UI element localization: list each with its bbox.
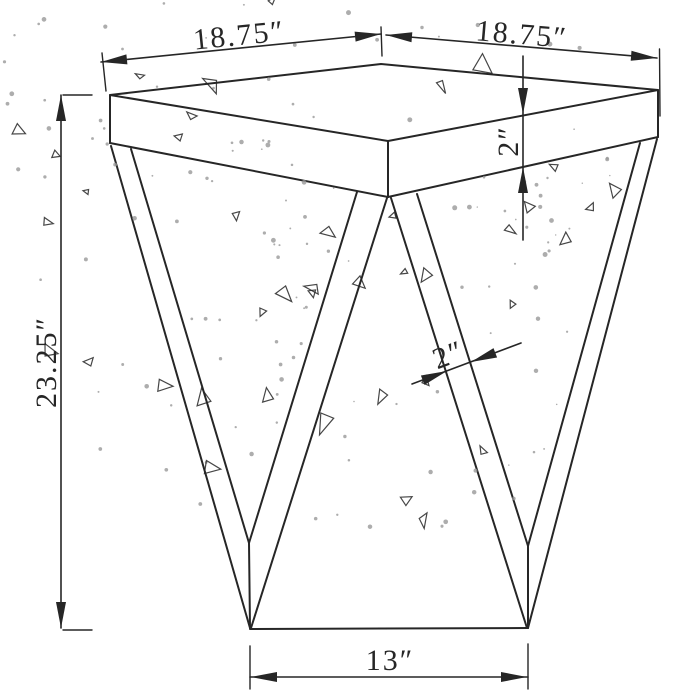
speckle-dot bbox=[533, 451, 536, 454]
speckle-dot bbox=[543, 448, 545, 450]
dim-arrowhead-down bbox=[56, 602, 66, 628]
dim-arrowhead-right bbox=[631, 51, 657, 61]
speckle-dot bbox=[198, 502, 202, 506]
speckle-dot bbox=[314, 517, 318, 521]
speckle-dot bbox=[538, 205, 542, 209]
dim-top-right-width-label: 18.75″ bbox=[475, 14, 569, 55]
right-leg-panel bbox=[163, 0, 657, 628]
speckle-dot bbox=[273, 243, 275, 245]
speckle-dot bbox=[343, 435, 346, 438]
speckle-dot bbox=[84, 257, 88, 261]
speckle-dot bbox=[103, 127, 106, 130]
speckle-dot bbox=[99, 119, 103, 123]
speckle-dot bbox=[477, 206, 478, 207]
speckle-dot bbox=[515, 219, 517, 221]
speckle-dot bbox=[474, 469, 478, 473]
base-stretcher-line bbox=[250, 628, 528, 629]
right-leg-outer-left bbox=[391, 198, 527, 628]
speckle-dot bbox=[460, 285, 463, 288]
speckle-dot bbox=[276, 393, 279, 396]
speckle-dot bbox=[39, 278, 42, 281]
left-leg-inner-right bbox=[249, 192, 357, 543]
dim-arrowhead-left bbox=[386, 32, 412, 42]
speckle-dot bbox=[9, 91, 14, 96]
dim-top-left-width-label: 18.75″ bbox=[192, 15, 287, 57]
speckle-dot bbox=[303, 307, 305, 309]
speckle-dot bbox=[306, 243, 308, 245]
speckle-triangle bbox=[610, 183, 622, 198]
speckle-triangle bbox=[473, 54, 492, 74]
speckle-dot bbox=[291, 164, 294, 167]
speckle-triangle bbox=[83, 358, 93, 366]
speckle-dot bbox=[279, 363, 283, 367]
speckle-dot bbox=[231, 141, 234, 144]
speckle-dot bbox=[440, 525, 443, 528]
speckle-dot bbox=[536, 316, 540, 320]
left-leg-seam bbox=[249, 543, 250, 628]
speckle-dot bbox=[255, 319, 257, 321]
speckle-dot bbox=[573, 128, 575, 130]
table-dimension-diagram: 18.75″ 18.75″ 2″ 23.25″ bbox=[0, 0, 700, 700]
speckle-triangle bbox=[263, 388, 274, 403]
speckle-dot bbox=[132, 216, 137, 221]
speckle-dot bbox=[239, 140, 243, 144]
dim-overall-height-label: 23.25″ bbox=[30, 316, 63, 408]
speckle-dot bbox=[555, 234, 556, 235]
speckle-triangle bbox=[353, 276, 366, 288]
dim-base-width-label: 13″ bbox=[366, 644, 415, 677]
speckle-dot bbox=[6, 102, 10, 106]
speckle-triangle bbox=[12, 124, 25, 134]
dim-extension-line bbox=[660, 49, 661, 116]
speckle-dot bbox=[512, 497, 516, 501]
speckle-dot bbox=[261, 148, 263, 150]
speckle-dot bbox=[546, 177, 548, 179]
speckle-dot bbox=[539, 194, 543, 198]
speckle-dot bbox=[289, 227, 291, 229]
dim-arrowhead-lower-left bbox=[471, 348, 497, 362]
speckle-dot bbox=[292, 103, 295, 106]
dim-arrowhead-right bbox=[501, 672, 527, 682]
speckle-dot bbox=[348, 260, 350, 262]
speckle-dot bbox=[265, 143, 270, 148]
speckle-dot bbox=[235, 426, 237, 428]
speckle-dot bbox=[568, 228, 570, 230]
dim-extension-line-apex bbox=[381, 27, 382, 56]
speckle-triangle bbox=[549, 164, 558, 171]
speckle-dot bbox=[488, 285, 490, 287]
speckle-dot bbox=[13, 34, 15, 36]
dim-arrowhead-left bbox=[251, 672, 277, 682]
speckle-dot bbox=[164, 468, 168, 472]
dim-overall-height: 23.25″ bbox=[30, 95, 92, 630]
tabletop-top-face bbox=[110, 64, 658, 141]
speckle-dot bbox=[163, 2, 166, 5]
speckle-dot bbox=[525, 226, 528, 229]
speckle-dot bbox=[303, 215, 307, 219]
speckle-triangle bbox=[203, 79, 217, 94]
speckle-triangle bbox=[524, 202, 535, 213]
speckle-dot bbox=[375, 38, 379, 42]
speckle-dot bbox=[156, 85, 158, 87]
speckle-triangle bbox=[437, 81, 446, 94]
speckle-triangle bbox=[44, 218, 54, 226]
dim-extension-line bbox=[102, 53, 106, 91]
speckle-dot bbox=[267, 77, 271, 81]
speckle-triangle bbox=[197, 388, 211, 406]
speckle-dot bbox=[276, 255, 280, 259]
speckle-triangle bbox=[378, 389, 388, 404]
speckle-dot bbox=[312, 116, 314, 118]
speckle-triangle bbox=[187, 112, 197, 120]
speckle-triangle bbox=[401, 269, 408, 274]
speckle-dot bbox=[263, 231, 266, 234]
right-leg-outer-right bbox=[528, 139, 657, 628]
diagram-canvas: 18.75″ 18.75″ 2″ 23.25″ bbox=[0, 0, 700, 700]
apron-bottom-left bbox=[110, 143, 388, 197]
speckle-dot bbox=[549, 218, 554, 223]
speckle-dot bbox=[452, 205, 457, 210]
speckle-dot bbox=[302, 180, 307, 185]
speckle-triangle bbox=[389, 212, 396, 218]
speckle-dot bbox=[333, 187, 335, 189]
speckle-dot bbox=[609, 175, 610, 176]
speckle-dot bbox=[188, 170, 192, 174]
speckle-dot bbox=[534, 369, 538, 373]
speckle-dot bbox=[353, 401, 355, 403]
speckle-dot bbox=[43, 99, 46, 102]
speckle-triangle bbox=[421, 268, 432, 282]
speckle-dot bbox=[368, 524, 373, 529]
speckle-dot bbox=[98, 391, 100, 393]
speckle-dot bbox=[336, 514, 338, 516]
speckle-dot bbox=[98, 447, 102, 451]
left-leg-outer-left bbox=[111, 146, 250, 628]
speckle-dot bbox=[121, 48, 124, 51]
speckle-dot bbox=[151, 175, 153, 177]
speckle-triangle bbox=[510, 300, 516, 308]
speckle-dot bbox=[490, 332, 492, 334]
speckle-triangle bbox=[560, 232, 571, 245]
speckle-triangle bbox=[158, 379, 173, 391]
dim-leg-strut-thickness: 2″ bbox=[412, 334, 521, 385]
speckle-triangle bbox=[268, 0, 275, 5]
speckle-dot bbox=[106, 142, 109, 145]
speckle-dot bbox=[504, 210, 507, 213]
speckle-triangle bbox=[52, 150, 60, 157]
speckle-dot bbox=[47, 126, 52, 131]
speckle-dot bbox=[420, 26, 423, 29]
speckle-triangle bbox=[174, 134, 182, 141]
speckle-dot bbox=[346, 10, 351, 15]
speckle-dot bbox=[556, 404, 558, 406]
dim-arrowhead-left bbox=[101, 54, 127, 64]
speckle-dot bbox=[300, 342, 303, 345]
speckle-dot bbox=[547, 241, 549, 243]
speckle-dot bbox=[543, 252, 548, 257]
dim-base-width: 13″ bbox=[250, 644, 528, 689]
speckle-triangle bbox=[504, 225, 516, 234]
speckle-dot bbox=[285, 199, 287, 201]
speckle-triangle bbox=[135, 74, 144, 79]
speckle-dot bbox=[271, 238, 276, 243]
speckle-dot bbox=[103, 25, 107, 29]
speckle-triangle bbox=[419, 513, 427, 529]
speckle-dot bbox=[327, 250, 330, 253]
speckle-dot bbox=[219, 357, 222, 360]
speckle-dot bbox=[275, 340, 279, 344]
speckle-triangle bbox=[480, 446, 487, 455]
speckle-dot bbox=[407, 117, 412, 122]
speckle-dot bbox=[548, 249, 551, 252]
speckle-dot bbox=[296, 296, 298, 298]
speckle-dot bbox=[243, 4, 245, 6]
speckle-dot bbox=[278, 244, 280, 246]
speckle-dot bbox=[279, 377, 284, 382]
speckle-dot bbox=[535, 183, 539, 187]
speckle-dot bbox=[428, 470, 432, 474]
speckle-dot bbox=[218, 319, 221, 322]
speckle-triangle bbox=[320, 413, 334, 435]
speckle-triangle bbox=[320, 226, 335, 237]
dim-top-thickness-label: 2″ bbox=[492, 125, 525, 157]
speckle-dot bbox=[211, 180, 213, 182]
speckle-dot bbox=[232, 150, 234, 152]
speckle-dot bbox=[91, 137, 94, 140]
speckle-dot bbox=[204, 317, 208, 321]
speckle-dot bbox=[533, 285, 538, 290]
speckle-dot bbox=[249, 452, 253, 456]
speckle-dot bbox=[293, 43, 297, 47]
left-leg-panel bbox=[0, 0, 387, 628]
speckle-dot bbox=[42, 17, 47, 22]
left-leg-outer-right bbox=[251, 198, 387, 628]
speckle-dot bbox=[267, 140, 270, 143]
speckle-dot bbox=[508, 464, 509, 465]
speckle-dot bbox=[305, 306, 308, 309]
speckle-dot bbox=[16, 167, 20, 171]
speckle-dot bbox=[43, 175, 46, 178]
speckle-dot bbox=[395, 403, 397, 405]
speckle-dot bbox=[606, 157, 609, 160]
speckle-dot bbox=[348, 459, 351, 462]
speckle-dot bbox=[438, 36, 440, 38]
speckle-triangle bbox=[260, 308, 267, 317]
right-leg-inner-right bbox=[528, 143, 640, 546]
speckle-triangle bbox=[586, 203, 594, 211]
speckle-dot bbox=[37, 23, 40, 26]
dim-arrowhead-up bbox=[518, 167, 528, 193]
dim-top-thickness: 2″ bbox=[492, 56, 528, 240]
speckle-dot bbox=[292, 356, 296, 360]
speckle-dot bbox=[514, 263, 516, 265]
speckle-dot bbox=[113, 163, 117, 167]
speckle-dot bbox=[262, 139, 264, 141]
speckle-dot bbox=[582, 182, 583, 183]
speckle-dot bbox=[578, 46, 582, 50]
speckle-dot bbox=[205, 177, 208, 180]
dim-arrowhead-down bbox=[518, 88, 528, 114]
speckle-dot bbox=[436, 390, 439, 393]
speckle-triangle bbox=[83, 190, 89, 195]
speckle-triangle bbox=[400, 497, 412, 506]
left-leg-inner-left bbox=[131, 149, 249, 543]
speckle-dot bbox=[3, 60, 6, 63]
speckle-dot bbox=[190, 318, 193, 321]
speckle-dot bbox=[472, 490, 477, 495]
tabletop bbox=[110, 64, 658, 197]
speckle-triangle bbox=[232, 212, 239, 221]
speckle-dot bbox=[121, 363, 124, 366]
speckle-dot bbox=[566, 331, 568, 333]
speckle-dot bbox=[144, 384, 149, 389]
speckle-dot bbox=[483, 176, 486, 179]
speckle-dot bbox=[276, 421, 278, 423]
speckle-dot bbox=[170, 404, 172, 406]
speckle-dot bbox=[443, 519, 448, 524]
speckle-dot bbox=[467, 205, 472, 210]
speckle-triangle bbox=[275, 286, 291, 302]
speckle-dot bbox=[175, 220, 179, 224]
dim-arrowhead-up bbox=[56, 95, 66, 121]
